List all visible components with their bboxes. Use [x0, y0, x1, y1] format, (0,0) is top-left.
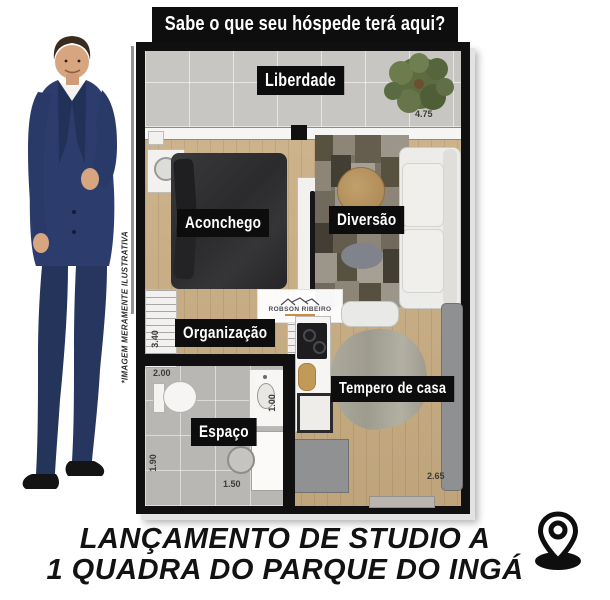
- banner-text: Sabe o que seu hóspede terá aqui?: [165, 13, 446, 36]
- cutting-board: [298, 363, 316, 391]
- headline-line2: 1 QUADRA DO PARQUE DO INGÁ: [5, 555, 565, 586]
- label-sleep: Aconchego: [177, 209, 269, 237]
- dining-chair: [341, 301, 399, 327]
- wall: [145, 354, 295, 366]
- man-head: [54, 36, 90, 79]
- dim-shower-width: 1.00: [267, 391, 277, 415]
- label-kitchen: Tempero de casa: [331, 376, 454, 402]
- headline-line1: LANÇAMENTO DE STUDIO A: [5, 524, 565, 555]
- wall-shelf: [148, 131, 164, 145]
- label-bath: Espaço: [191, 418, 257, 446]
- dim-bath-height: 1.90: [148, 451, 158, 475]
- pillow: [173, 158, 197, 215]
- pouf: [341, 243, 383, 269]
- sofa-cushion: [402, 229, 444, 293]
- dim-dining-height: 2.65: [427, 471, 445, 481]
- toilet-bowl: [163, 381, 197, 413]
- burner-icon: [313, 341, 326, 354]
- man-pants: [36, 266, 107, 474]
- sliding-door-mullion: [291, 125, 307, 140]
- man-suit: [28, 80, 117, 266]
- floor-plan-inner: ROBSON RIBEIRO: [145, 51, 461, 505]
- label-living: Diversão: [329, 206, 404, 234]
- dim-bath-width-top: 2.00: [153, 368, 171, 378]
- dim-balcony-width: 4.75: [415, 109, 433, 119]
- roofline-icon: [280, 297, 320, 306]
- floor-plan: ROBSON RIBEIRO: [136, 42, 470, 514]
- label-balcony: Liberdade: [257, 66, 344, 95]
- faucet-icon: [263, 375, 267, 379]
- sofa-cushion: [402, 163, 444, 227]
- flyer: *IMAGEM MERAMENTE ILUSTRATIVA Sabe o que…: [0, 0, 610, 600]
- man-shoes: [23, 461, 105, 489]
- label-closet: Organização: [175, 319, 275, 347]
- dim-closet-height: 3.40: [150, 327, 160, 351]
- watermark-name: ROBSON RIBEIRO: [268, 306, 331, 313]
- headline: LANÇAMENTO DE STUDIO A 1 QUADRA DO PARQU…: [5, 524, 565, 586]
- top-banner: Sabe o que seu hóspede terá aqui?: [152, 7, 458, 42]
- plan-page-edge: [131, 46, 134, 314]
- shower-drain: [227, 446, 255, 474]
- wall: [283, 354, 295, 506]
- burner-icon: [303, 329, 316, 342]
- image-disclaimer: *IMAGEM MERAMENTE ILUSTRATIVA: [121, 234, 132, 384]
- doormat: [369, 496, 435, 508]
- refrigerator: [293, 439, 349, 493]
- kitchen-sink: [297, 393, 333, 433]
- location-pin-icon: [527, 508, 589, 580]
- dim-bath-width-bottom: 1.50: [223, 479, 241, 489]
- sofa-back: [443, 149, 457, 305]
